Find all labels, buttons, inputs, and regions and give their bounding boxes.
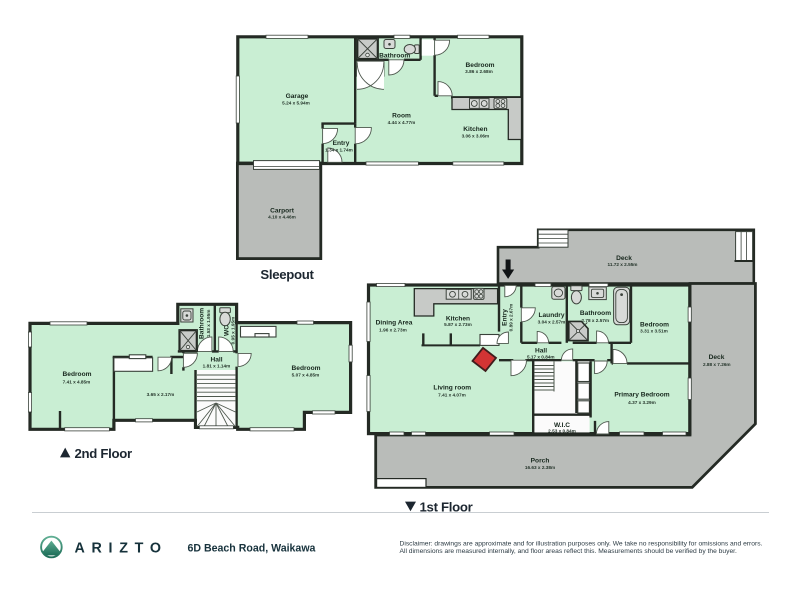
svg-text:1.53 x 1.95m: 1.53 x 1.95m bbox=[206, 310, 211, 338]
svg-text:11.72 x 2.55m: 11.72 x 2.55m bbox=[608, 262, 638, 267]
svg-text:Bedroom: Bedroom bbox=[466, 62, 495, 69]
svg-text:4.10 x 4.46m: 4.10 x 4.46m bbox=[268, 214, 296, 219]
svg-text:0.89 x 2.67m: 0.89 x 2.67m bbox=[509, 304, 514, 332]
svg-text:2.88 x 7.26m: 2.88 x 7.26m bbox=[703, 362, 731, 367]
svg-text:5.17 x 0.84m: 5.17 x 0.84m bbox=[527, 355, 555, 360]
svg-text:Garage: Garage bbox=[286, 93, 309, 100]
svg-text:Bedroom: Bedroom bbox=[63, 371, 92, 378]
svg-text:3.65 x 2.17m: 3.65 x 2.17m bbox=[147, 392, 175, 397]
svg-text:0.95 x 1.95m: 0.95 x 1.95m bbox=[230, 317, 235, 345]
svg-text:2.78 x 2.57m: 2.78 x 2.57m bbox=[581, 318, 609, 323]
svg-text:All dimensions are measured in: All dimensions are measured internally, … bbox=[400, 548, 738, 555]
svg-text:Carport: Carport bbox=[270, 207, 295, 214]
svg-text:Entry: Entry bbox=[333, 140, 350, 147]
svg-text:Bedroom: Bedroom bbox=[640, 321, 669, 328]
svg-text:4.44 x 4.77m: 4.44 x 4.77m bbox=[388, 120, 416, 125]
svg-text:7.41 x 4.07m: 7.41 x 4.07m bbox=[438, 393, 466, 398]
svg-text:Bedroom: Bedroom bbox=[292, 365, 321, 372]
svg-text:Bathroom: Bathroom bbox=[580, 310, 611, 317]
svg-text:ARIZTO: ARIZTO bbox=[75, 540, 168, 556]
svg-text:2.53 x 0.84m: 2.53 x 0.84m bbox=[548, 428, 576, 433]
svg-text:Laundry: Laundry bbox=[538, 312, 564, 319]
svg-text:Bathroom: Bathroom bbox=[199, 308, 206, 339]
svg-text:Sleepout: Sleepout bbox=[260, 267, 314, 282]
svg-text:6D Beach Road, Waikawa: 6D Beach Road, Waikawa bbox=[188, 542, 316, 554]
svg-text:7.41 x 4.85m: 7.41 x 4.85m bbox=[63, 379, 91, 384]
svg-text:4.37 x 3.29m: 4.37 x 3.29m bbox=[628, 400, 656, 405]
svg-text:3.86 x 2.68m: 3.86 x 2.68m bbox=[465, 69, 493, 74]
svg-text:Deck: Deck bbox=[709, 354, 725, 361]
svg-text:1.81 x 1.14m: 1.81 x 1.14m bbox=[203, 363, 231, 368]
svg-text:Porch: Porch bbox=[531, 457, 550, 464]
svg-text:3.06 x 3.06m: 3.06 x 3.06m bbox=[462, 133, 490, 138]
svg-text:Hall: Hall bbox=[535, 347, 547, 354]
svg-text:Primary Bedroom: Primary Bedroom bbox=[614, 392, 669, 399]
svg-text:2nd Floor: 2nd Floor bbox=[75, 446, 133, 461]
svg-text:5.07 x 4.85m: 5.07 x 4.85m bbox=[292, 373, 320, 378]
svg-text:Living room: Living room bbox=[433, 385, 471, 392]
svg-text:Disclaimer: drawings are appro: Disclaimer: drawings are approximate and… bbox=[400, 541, 763, 548]
svg-text:5.24 x 5.94m: 5.24 x 5.94m bbox=[282, 101, 310, 106]
svg-text:1.96 x 2.73m: 1.96 x 2.73m bbox=[379, 327, 407, 332]
svg-text:3.31 x 3.51m: 3.31 x 3.51m bbox=[640, 329, 668, 334]
svg-text:Room: Room bbox=[392, 112, 411, 119]
svg-text:Entry: Entry bbox=[501, 309, 508, 326]
svg-text:Bathroom: Bathroom bbox=[379, 53, 410, 60]
svg-text:1.34 x 1.74m: 1.34 x 1.74m bbox=[325, 148, 353, 153]
svg-text:16.63 x 2.38m: 16.63 x 2.38m bbox=[525, 465, 555, 470]
svg-text:Hall: Hall bbox=[210, 356, 222, 363]
svg-text:5.87 x 2.73m: 5.87 x 2.73m bbox=[444, 322, 472, 327]
svg-text:3.04 x 2.57m: 3.04 x 2.57m bbox=[538, 320, 566, 325]
svg-text:Dining Area: Dining Area bbox=[376, 320, 413, 327]
svg-text:Kitchen: Kitchen bbox=[463, 126, 487, 133]
